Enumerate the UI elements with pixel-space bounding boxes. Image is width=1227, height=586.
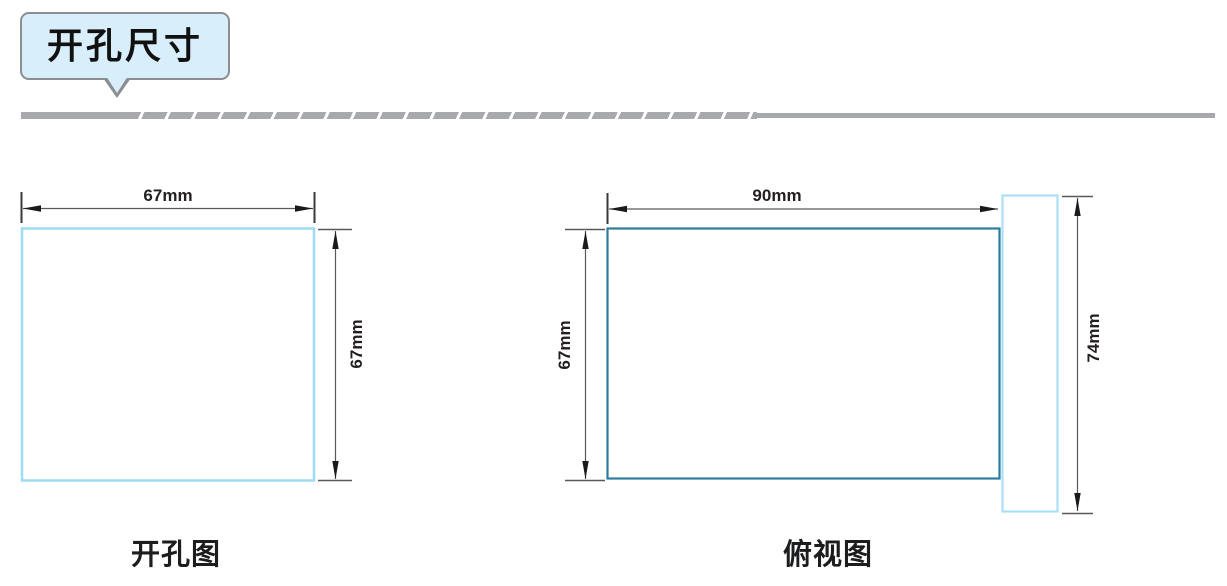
height-dimension-label: 67mm [347, 319, 366, 368]
overall-height-dimension-label: 74mm [1084, 313, 1103, 362]
top-view-figure: 90mm 67mm 74mm [540, 170, 1160, 530]
arrow-up-icon [582, 231, 588, 249]
arrow-left-icon [609, 206, 627, 212]
width-dimension-label: 90mm [752, 186, 801, 205]
title-bubble: 开孔尺寸 [20, 12, 230, 80]
cutout-figure-caption: 开孔图 [56, 531, 296, 573]
arrow-right-icon [980, 206, 998, 212]
arrow-down-icon [1074, 493, 1080, 511]
arrow-up-icon [332, 231, 338, 249]
bubble-tail-fill [106, 76, 128, 93]
body-rect [608, 229, 1000, 479]
height-dimension-label: 67mm [555, 320, 574, 369]
flange-rect [1003, 196, 1058, 512]
top-view-figure-caption: 俯视图 [708, 531, 948, 573]
divider-right-segment [757, 113, 1215, 118]
divider-slashed-segment [118, 112, 757, 119]
width-dimension-label: 67mm [143, 186, 192, 205]
cutout-rect [22, 229, 314, 481]
page-title: 开孔尺寸 [47, 28, 203, 64]
arrow-right-icon [295, 205, 313, 211]
divider-left-segment [21, 112, 118, 119]
arrow-up-icon [1074, 198, 1080, 216]
cutout-figure: 67mm 67mm [0, 170, 400, 515]
arrow-left-icon [23, 205, 41, 211]
arrow-down-icon [582, 461, 588, 479]
arrow-down-icon [332, 461, 338, 479]
